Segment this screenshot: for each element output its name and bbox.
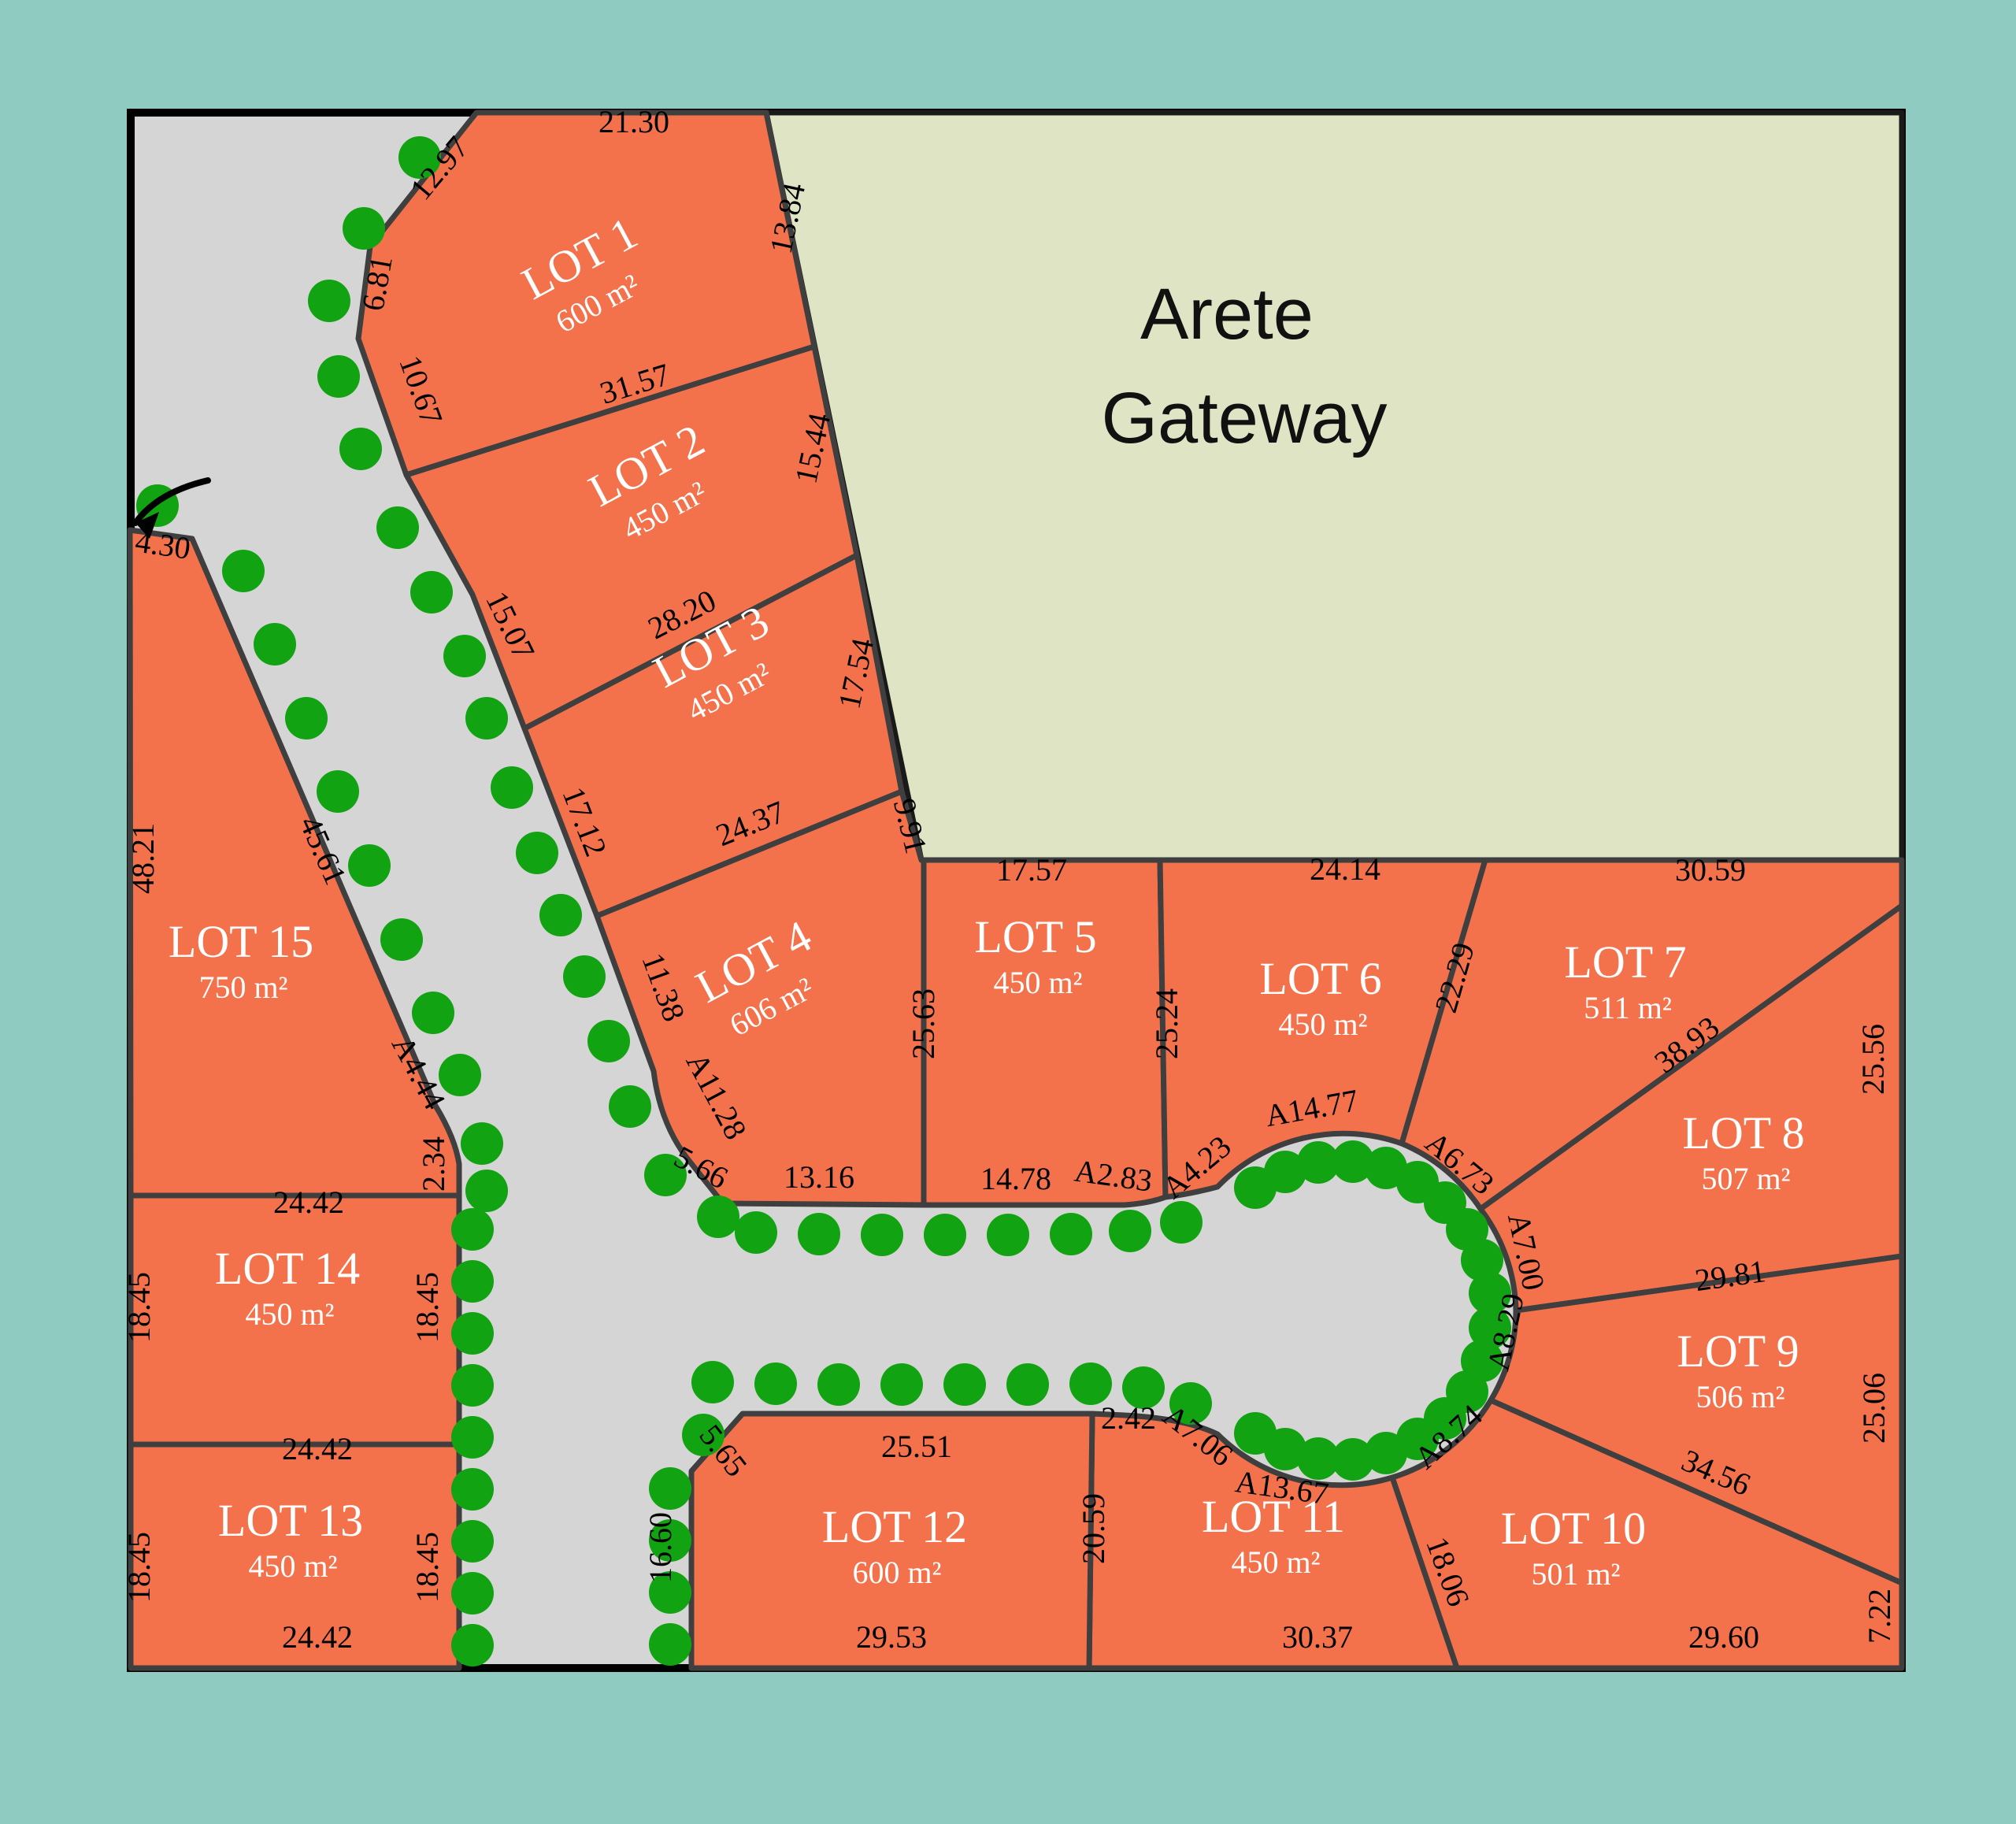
dimension-label: 30.37	[1282, 1619, 1353, 1655]
plat-map-canvas: LOT 1600 m²LOT 2450 m²LOT 3450 m²LOT 460…	[0, 0, 2016, 1824]
dimension-label: 16.60	[643, 1512, 678, 1583]
lot-area-10: 501 m²	[1531, 1556, 1620, 1592]
lot-area-8: 507 m²	[1701, 1161, 1790, 1196]
tree-dot	[861, 1214, 903, 1256]
lot-name-5: LOT 5	[974, 911, 1096, 962]
tree-dot	[697, 1196, 739, 1238]
dimension-label: 25.63	[906, 988, 941, 1059]
tree-dot	[451, 1364, 494, 1407]
dimension-label: 24.42	[273, 1184, 344, 1220]
tree-dot	[691, 1361, 734, 1403]
tree-dot	[317, 770, 359, 813]
dimension-label: 18.45	[409, 1532, 445, 1603]
tree-dot	[987, 1214, 1029, 1256]
tree-dot	[649, 1467, 691, 1510]
tree-dot	[380, 918, 423, 961]
tree-dot	[516, 832, 558, 874]
tree-dot	[1160, 1201, 1203, 1244]
tree-dot	[798, 1213, 840, 1255]
dimension-label: 21.30	[598, 104, 669, 139]
dimension-label: 13.16	[784, 1159, 854, 1195]
dimension-label: 48.21	[125, 823, 161, 894]
dimension-label: 7.22	[1862, 1589, 1897, 1644]
lot-name-9: LOT 9	[1677, 1325, 1799, 1377]
tree-dot	[254, 623, 296, 665]
lot-name-7: LOT 7	[1564, 936, 1686, 988]
tree-dot	[222, 550, 265, 592]
tree-dot	[609, 1085, 651, 1128]
tree-dot	[649, 1623, 691, 1666]
tree-dot	[465, 1170, 508, 1212]
lot-name-12: LOT 12	[822, 1501, 967, 1552]
lot-area-7: 511 m²	[1584, 990, 1672, 1025]
reserve-title: Gateway	[1101, 378, 1387, 458]
tree-dot	[754, 1362, 797, 1405]
tree-dot	[880, 1363, 923, 1406]
lot-area-13: 450 m²	[248, 1548, 337, 1584]
tree-dot	[451, 1624, 494, 1666]
dimension-label: 24.42	[282, 1431, 353, 1466]
dimension-label: 29.53	[856, 1619, 927, 1655]
lot-area-9: 506 m²	[1695, 1379, 1784, 1414]
dimension-label: 25.51	[881, 1429, 952, 1464]
tree-dot	[443, 635, 486, 677]
dimension-label: 25.56	[1855, 1024, 1891, 1095]
lot-name-6: LOT 6	[1259, 953, 1381, 1004]
lot-area-11: 450 m²	[1231, 1544, 1320, 1580]
lot-name-8: LOT 8	[1682, 1107, 1804, 1159]
tree-dot	[285, 697, 328, 740]
dimension-label: 18.45	[121, 1272, 157, 1343]
lot-area-15: 750 m²	[198, 969, 287, 1005]
tree-dot	[451, 1260, 494, 1303]
tree-dot	[451, 1520, 494, 1563]
tree-dot	[465, 697, 508, 740]
tree-dot	[1050, 1213, 1092, 1255]
lot-area-5: 450 m²	[993, 965, 1082, 1000]
tree-dot	[735, 1211, 777, 1254]
tree-dot	[451, 1416, 494, 1459]
tree-dot	[451, 1572, 494, 1615]
tree-dot	[587, 1020, 630, 1062]
tree-dot	[376, 506, 419, 549]
tree-dot	[539, 894, 582, 936]
tree-dot	[1109, 1210, 1151, 1252]
dimension-label: 29.60	[1688, 1619, 1759, 1655]
tree-dot	[451, 1468, 494, 1511]
reserve-title: Arete	[1140, 274, 1314, 354]
dimension-label: 18.45	[409, 1272, 445, 1343]
tree-dot	[924, 1214, 966, 1256]
subdivision-plat-svg: LOT 1600 m²LOT 2450 m²LOT 3450 m²LOT 460…	[0, 0, 2016, 1824]
tree-dot	[451, 1312, 494, 1355]
lot-area-14: 450 m²	[245, 1296, 334, 1332]
dimension-label: 2.34	[416, 1136, 451, 1192]
tree-dot	[348, 844, 391, 887]
tree-dot	[317, 355, 360, 398]
dimension-label: 24.14	[1310, 851, 1380, 887]
lot-name-13: LOT 13	[218, 1495, 363, 1546]
tree-dot	[343, 207, 385, 250]
tree-dot	[451, 1208, 494, 1251]
lot-area-6: 450 m²	[1278, 1007, 1367, 1042]
dimension-label: 20.59	[1076, 1493, 1111, 1564]
tree-dot	[339, 428, 382, 470]
dimension-label: 17.57	[996, 852, 1067, 888]
tree-dot	[410, 571, 453, 614]
lot-name-15: LOT 15	[169, 916, 313, 967]
tree-dot	[412, 992, 454, 1034]
dimension-label: 30.59	[1675, 852, 1746, 888]
tree-dot	[943, 1363, 986, 1406]
lot-area-12: 600 m²	[852, 1555, 941, 1590]
dimension-label: 25.06	[1856, 1373, 1892, 1444]
tree-dot	[817, 1363, 860, 1406]
dimension-label: 18.45	[121, 1532, 157, 1603]
tree-dot	[308, 280, 350, 322]
tree-dot	[1006, 1363, 1049, 1406]
tree-dot	[491, 766, 533, 809]
dimension-label: 25.24	[1149, 988, 1184, 1059]
dimension-label: 2.42	[1101, 1400, 1156, 1436]
dimension-label: 24.42	[282, 1619, 353, 1655]
tree-dot	[1069, 1362, 1112, 1405]
dimension-label: 14.78	[980, 1161, 1051, 1196]
tree-dot	[461, 1122, 503, 1165]
tree-dot	[563, 955, 606, 998]
lot-name-10: LOT 10	[1501, 1503, 1646, 1554]
tree-dot	[1234, 1412, 1277, 1455]
lot-name-14: LOT 14	[215, 1243, 360, 1294]
reserve-area-arete-gateway	[766, 113, 1902, 860]
